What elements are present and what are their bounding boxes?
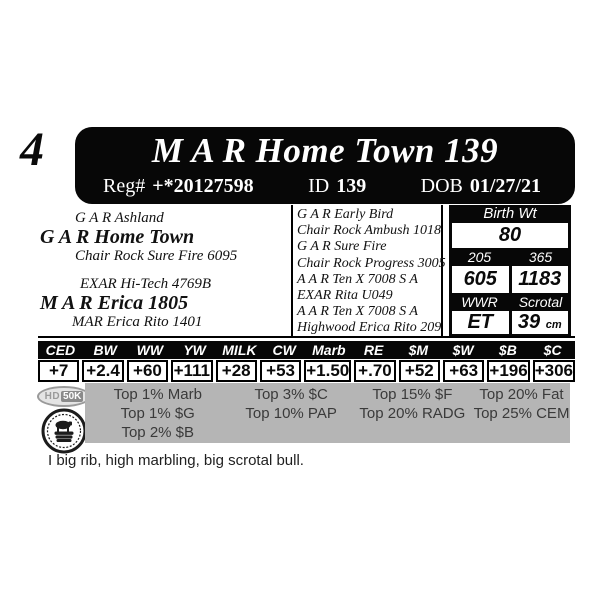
rankings-column: Top 20% Fat Top 25% CEM bbox=[473, 383, 570, 443]
rankings-column: Top 3% $C Top 10% PAP bbox=[231, 383, 352, 443]
epd-column-header: RE bbox=[351, 341, 396, 359]
ranking-item: Top 1% Marb bbox=[114, 385, 202, 404]
dam-of-sire: Chair Rock Sure Fire 6095 bbox=[38, 248, 291, 265]
id-value: 139 bbox=[336, 173, 366, 199]
genomic-badges: HD50K bbox=[36, 386, 92, 454]
wwr-scrotal-labels: WWR Scrotal bbox=[449, 294, 571, 311]
scrotal-label: Scrotal bbox=[510, 294, 571, 311]
dam-name: M A R Erica 1805 bbox=[38, 293, 291, 314]
weights-panel: Birth Wt 80 205 365 605 1183 WWR Scrotal… bbox=[449, 205, 571, 337]
epd-column-header: WW bbox=[128, 341, 173, 359]
epd-value: +111 bbox=[171, 360, 212, 382]
ancestor-line: EXAR Rita U049 bbox=[297, 288, 441, 304]
pedigree-parents: G A R Ashland G A R Home Town Chair Rock… bbox=[38, 205, 291, 336]
pedigree-gap bbox=[38, 265, 291, 276]
epd-value: +63 bbox=[443, 360, 484, 382]
animal-name: M A R Home Town 139 bbox=[75, 128, 575, 173]
wt-205-value: 605 bbox=[452, 266, 509, 293]
sire-of-dam: EXAR Hi-Tech 4769B bbox=[38, 276, 291, 293]
ranking-item: Top 20% RADG bbox=[359, 404, 465, 423]
tattoo-id: ID 139 bbox=[308, 173, 366, 199]
ancestor-line: G A R Sure Fire bbox=[297, 239, 441, 255]
sire-name: G A R Home Town bbox=[38, 227, 291, 248]
epd-column-header: CED bbox=[38, 341, 83, 359]
ancestor-line: Chair Rock Progress 3005 bbox=[297, 256, 441, 272]
registration: Reg# +*20127598 bbox=[103, 173, 254, 199]
weight-values: 605 1183 bbox=[452, 266, 568, 293]
wt-205-label: 205 bbox=[449, 249, 510, 266]
epd-column-header: $W bbox=[441, 341, 486, 359]
sire-of-sire: G A R Ashland bbox=[38, 210, 291, 227]
bull-seal-icon bbox=[41, 408, 87, 454]
date-of-birth: DOB 01/27/21 bbox=[421, 173, 541, 199]
reg-value: +*20127598 bbox=[152, 173, 253, 199]
weight-day-labels: 205 365 bbox=[449, 249, 571, 266]
ranking-item: Top 2% $B bbox=[121, 423, 194, 442]
ancestor-line: A A R Ten X 7008 S A bbox=[297, 304, 441, 320]
wwr-scrotal-values: ET 39 cm bbox=[452, 311, 568, 334]
percentile-rankings-box: Top 1% Marb Top 1% $G Top 2% $B Top 3% $… bbox=[85, 383, 570, 443]
sale-note: I big rib, high marbling, big scrotal bu… bbox=[48, 452, 304, 469]
birth-wt-value: 80 bbox=[452, 223, 568, 248]
ancestor-line: A A R Ten X 7008 S A bbox=[297, 272, 441, 288]
epd-table: CED BW WW YW MILK CW Marb RE $M $W $B $C… bbox=[38, 341, 575, 382]
dam-of-dam: MAR Erica Rito 1401 bbox=[38, 314, 291, 331]
reg-label: Reg# bbox=[103, 173, 145, 199]
wt-365-value: 1183 bbox=[512, 266, 569, 293]
rankings-column: Top 1% Marb Top 1% $G Top 2% $B bbox=[85, 383, 231, 443]
id-label: ID bbox=[308, 173, 329, 199]
epd-value: +.70 bbox=[354, 360, 395, 382]
rankings-column: Top 15% $F Top 20% RADG bbox=[352, 383, 473, 443]
ranking-item: Top 25% CEM bbox=[474, 404, 570, 423]
ranking-item: Top 15% $F bbox=[372, 385, 452, 404]
dob-value: 01/27/21 bbox=[470, 173, 541, 199]
epd-column-header: YW bbox=[172, 341, 217, 359]
epd-value-row: +7 +2.4 +60 +111 +28 +53 +1.50 +.70 +52 … bbox=[38, 360, 575, 382]
epd-value: +2.4 bbox=[82, 360, 123, 382]
epd-value: +53 bbox=[260, 360, 301, 382]
birth-wt-label: Birth Wt bbox=[449, 205, 571, 223]
animal-ids-row: Reg# +*20127598 ID 139 DOB 01/27/21 bbox=[75, 173, 575, 199]
wwr-label: WWR bbox=[449, 294, 510, 311]
lot-number: 4 bbox=[20, 122, 44, 177]
epd-value: +196 bbox=[487, 360, 529, 382]
pedigree-ancestors: G A R Early Bird Chair Rock Ambush 1018 … bbox=[291, 205, 443, 336]
epd-column-header: CW bbox=[262, 341, 307, 359]
epd-column-header: BW bbox=[83, 341, 128, 359]
epd-column-header: $C bbox=[530, 341, 575, 359]
pedigree-section: G A R Ashland G A R Home Town Chair Rock… bbox=[38, 205, 575, 336]
ranking-item: Top 10% PAP bbox=[245, 404, 336, 423]
epd-value: +52 bbox=[399, 360, 440, 382]
epd-value: +1.50 bbox=[304, 360, 351, 382]
scrotal-value: 39 cm bbox=[512, 311, 569, 334]
ancestor-line: Highwood Erica Rito 209 bbox=[297, 320, 441, 336]
animal-header: M A R Home Town 139 Reg# +*20127598 ID 1… bbox=[75, 127, 575, 204]
epd-value: +60 bbox=[127, 360, 168, 382]
scrotal-unit: cm bbox=[546, 319, 562, 331]
pedigree-table-divider bbox=[38, 336, 575, 338]
ranking-item: Top 20% Fat bbox=[479, 385, 563, 404]
ranking-item: Top 3% $C bbox=[254, 385, 327, 404]
epd-value: +306 bbox=[533, 360, 575, 382]
epd-column-header: Marb bbox=[307, 341, 352, 359]
ancestor-line: Chair Rock Ambush 1018 bbox=[297, 223, 441, 239]
epd-column-header: $M bbox=[396, 341, 441, 359]
wwr-value: ET bbox=[452, 311, 509, 334]
hd50k-badge-icon: HD50K bbox=[37, 386, 91, 407]
epd-column-header: $B bbox=[486, 341, 531, 359]
epd-value: +28 bbox=[216, 360, 257, 382]
ranking-item: Top 1% $G bbox=[121, 404, 195, 423]
dob-label: DOB bbox=[421, 173, 463, 199]
epd-value: +7 bbox=[38, 360, 79, 382]
hd50k-hd-text: HD bbox=[45, 391, 60, 402]
hd50k-50k-text: 50K bbox=[61, 391, 83, 402]
epd-header-row: CED BW WW YW MILK CW Marb RE $M $W $B $C bbox=[38, 341, 575, 359]
epd-column-header: MILK bbox=[217, 341, 262, 359]
ancestor-line: G A R Early Bird bbox=[297, 207, 441, 223]
wt-365-label: 365 bbox=[510, 249, 571, 266]
